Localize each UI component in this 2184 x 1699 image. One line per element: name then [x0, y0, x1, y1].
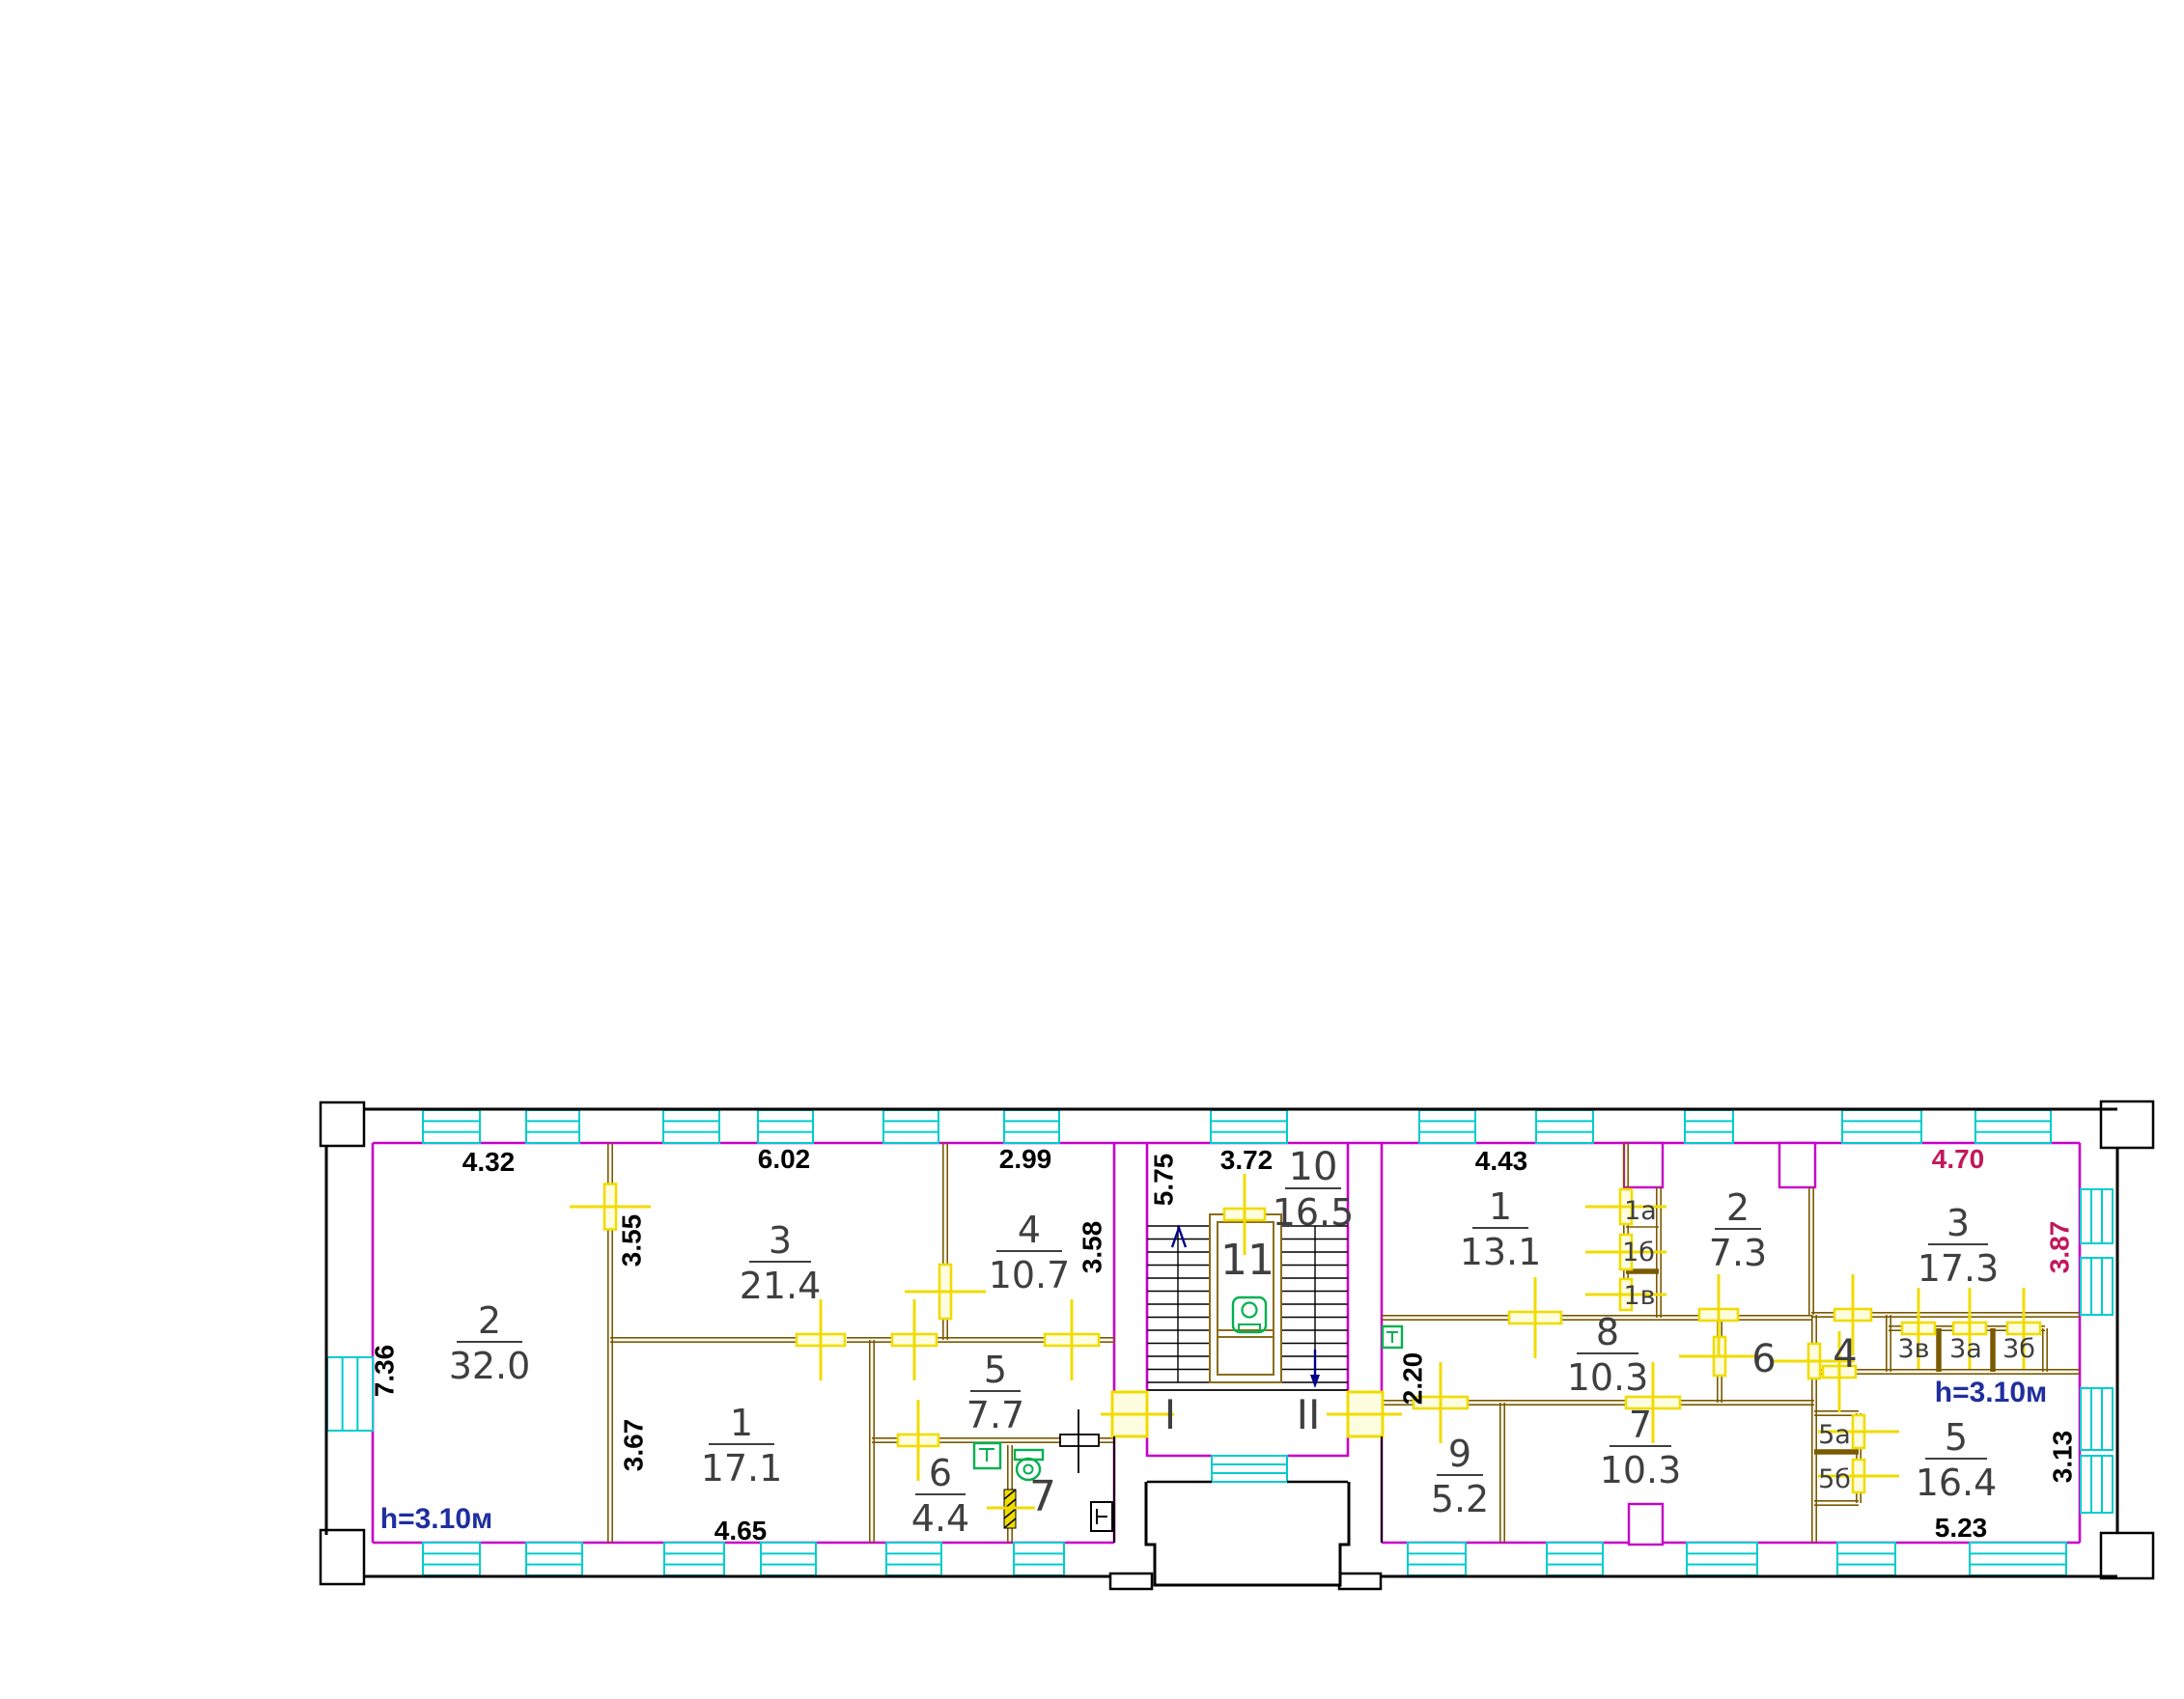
room-l1-area: 17.1 [701, 1447, 783, 1490]
room-r3-area: 17.3 [1918, 1247, 2000, 1290]
room-r1v-num: 1в [1623, 1281, 1655, 1311]
window [1004, 1110, 1059, 1143]
window [1408, 1543, 1466, 1575]
window [664, 1543, 724, 1575]
window [1547, 1543, 1603, 1575]
room-l4-num: 4 [1018, 1209, 1041, 1251]
room-l4-area: 10.7 [989, 1254, 1071, 1296]
room-r1-num: 1 [1489, 1185, 1512, 1228]
room-l2-num: 2 [478, 1299, 501, 1342]
marked-opening [1060, 1434, 1099, 1446]
dim-left-height: 7.36 [369, 1345, 399, 1398]
pilaster [321, 1102, 364, 1146]
room-r5a-num: 5а [1818, 1420, 1851, 1450]
room-r3-num: 3 [1946, 1202, 1970, 1244]
entrance-vestibule [1146, 1482, 1349, 1585]
room-r9-num: 9 [1448, 1433, 1471, 1475]
window [883, 1110, 938, 1143]
window [1212, 1456, 1287, 1482]
window [526, 1110, 579, 1143]
dim-bottom-room1: 4.65 [714, 1516, 768, 1546]
room-l5-area: 7.7 [966, 1394, 1024, 1436]
window [1419, 1110, 1475, 1143]
ceiling-height-left: h=3.10м [380, 1503, 492, 1535]
dim-top-room3r: 4.70 [1932, 1144, 1985, 1174]
wall-pier [1624, 1143, 1663, 1187]
room-r7-num: 7 [1629, 1404, 1652, 1446]
room-r5-num: 5 [1945, 1416, 1968, 1459]
dim-top-room4: 2.99 [999, 1144, 1052, 1174]
room-r3a-num: 3а [1949, 1334, 1982, 1364]
window [423, 1543, 480, 1575]
room-r1a-num: 1а [1624, 1196, 1657, 1226]
room-r2-area: 7.3 [1709, 1232, 1767, 1274]
dim-top-room3: 6.02 [758, 1144, 811, 1174]
window [663, 1110, 719, 1143]
entrance-label-1: I [1164, 1391, 1176, 1438]
dim-stair-height: 5.75 [1148, 1154, 1178, 1207]
room-l6-num: 6 [929, 1452, 952, 1494]
room-l6-area: 4.4 [911, 1497, 969, 1540]
room-r5-area: 16.4 [1916, 1462, 1998, 1504]
room-r9-area: 5.2 [1431, 1478, 1489, 1520]
room-r4-num: 4 [1833, 1332, 1857, 1377]
entrance-label-2: II [1297, 1391, 1321, 1438]
window [2081, 1258, 2113, 1315]
window [1842, 1110, 1921, 1143]
dim-room5r-height: 3.13 [2047, 1431, 2077, 1484]
window [2081, 1388, 2113, 1450]
window [1014, 1543, 1064, 1575]
pilaster [321, 1530, 364, 1584]
window [1536, 1110, 1593, 1143]
dim-top-room2: 4.32 [462, 1147, 516, 1177]
window [1685, 1110, 1733, 1143]
room-r6-num: 6 [1751, 1337, 1776, 1381]
room-r1-area: 13.1 [1460, 1231, 1542, 1273]
window [1970, 1543, 2066, 1575]
wall-pier [1779, 1143, 1815, 1187]
window [1211, 1110, 1287, 1143]
room-r3v-num: 3в [1897, 1334, 1929, 1364]
ceiling-height-right: h=3.10м [1935, 1377, 2047, 1408]
window [1975, 1110, 2051, 1143]
dim-top-right1: 4.43 [1475, 1146, 1528, 1176]
window [423, 1110, 480, 1143]
dim-room3-height: 3.55 [616, 1214, 646, 1267]
dim-room1-height: 3.67 [618, 1419, 648, 1472]
dim-stair-width: 3.72 [1220, 1145, 1274, 1175]
window [1687, 1543, 1757, 1575]
room-r3b-num: 3б [2002, 1334, 2035, 1364]
room-l3-num: 3 [769, 1219, 792, 1262]
window [2081, 1189, 2113, 1243]
window [761, 1543, 816, 1575]
room-r10-num: 10 [1289, 1145, 1338, 1189]
window [1837, 1543, 1895, 1575]
room-r1b-num: 1б [1622, 1238, 1655, 1267]
vestibule-outline [1146, 1482, 1349, 1585]
room-l7-num: 7 [1029, 1472, 1056, 1521]
wall-pier [1629, 1504, 1663, 1545]
room-r2-num: 2 [1726, 1186, 1750, 1229]
room-r7-area: 10.3 [1600, 1449, 1682, 1491]
window [886, 1543, 941, 1575]
window [526, 1543, 582, 1575]
dim-room3r-height: 3.87 [2044, 1221, 2074, 1274]
pilaster [1110, 1574, 1152, 1589]
pilaster [1339, 1574, 1381, 1589]
room-r8-area: 10.3 [1567, 1356, 1649, 1399]
dim-corridor-width: 2.20 [1397, 1352, 1427, 1406]
page: 2138263\2 этаж Адрес: Октябрьская ул., д… [0, 0, 2184, 1699]
room-l1-num: 1 [730, 1402, 753, 1444]
room-l3-area: 21.4 [740, 1265, 822, 1307]
dim-room4-height: 3.58 [1077, 1221, 1106, 1274]
room-l2-area: 32.0 [449, 1345, 531, 1387]
room-r5b-num: 5б [1818, 1464, 1851, 1494]
window [2081, 1456, 2113, 1513]
dim-bottom-room5r: 5.23 [1935, 1513, 1988, 1543]
room-l5-num: 5 [984, 1349, 1007, 1391]
room-r8-num: 8 [1596, 1311, 1619, 1353]
pilaster [2101, 1533, 2153, 1578]
window [758, 1110, 813, 1143]
room-stair-num: 11 [1220, 1236, 1274, 1285]
window [327, 1357, 373, 1431]
floor-plan: 4.32 6.02 2.99 3.72 4.43 4.70 4.65 5.23 … [0, 0, 2184, 1699]
room-r10-area: 16.5 [1273, 1191, 1355, 1234]
